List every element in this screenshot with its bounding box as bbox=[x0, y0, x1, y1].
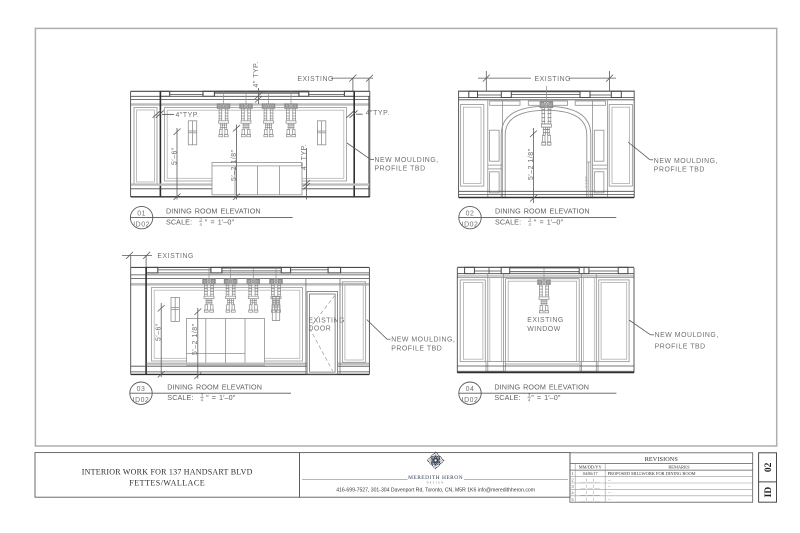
svg-text:DINING ROOM ELEVATION: DINING ROOM ELEVATION bbox=[494, 382, 589, 391]
svg-text:2′-1 3/4″: 2′-1 3/4″ bbox=[585, 175, 589, 188]
svg-text:″ = 1′–0″: ″ = 1′–0″ bbox=[206, 393, 236, 402]
svg-text:PROFILE TBD: PROFILE TBD bbox=[655, 343, 706, 350]
svg-text:__/__/__: __/__/__ bbox=[579, 484, 600, 489]
svg-text:__/__/__: __/__/__ bbox=[579, 478, 600, 483]
svg-text:416-699-7527, 301-304 Davenpor: 416-699-7527, 301-304 Davenport Rd, Toro… bbox=[336, 487, 535, 493]
svg-text:ID02: ID02 bbox=[462, 397, 479, 404]
svg-text:ID: ID bbox=[764, 487, 774, 498]
svg-text:NEW MOULDING,: NEW MOULDING, bbox=[654, 158, 718, 165]
svg-text:EXISTING: EXISTING bbox=[308, 318, 345, 325]
svg-text:EXISTING: EXISTING bbox=[527, 317, 564, 324]
svg-text:04: 04 bbox=[466, 386, 475, 393]
svg-text:ID02: ID02 bbox=[133, 397, 150, 404]
svg-text:″ = 1′–0″: ″ = 1′–0″ bbox=[531, 393, 561, 402]
svg-text:MEREDITH HERON: MEREDITH HERON bbox=[408, 475, 463, 481]
svg-text:DINING ROOM ELEVATION: DINING ROOM ELEVATION bbox=[166, 207, 261, 216]
svg-text:REMARKS: REMARKS bbox=[668, 465, 690, 470]
svg-text:″ = 1′–0″: ″ = 1′–0″ bbox=[534, 217, 564, 226]
svg-text:4″ TYP.: 4″ TYP. bbox=[301, 144, 308, 170]
svg-text:SCALE:: SCALE: bbox=[166, 217, 192, 226]
svg-text:NEW MOULDING,: NEW MOULDING, bbox=[655, 332, 719, 339]
svg-text:DOOR: DOOR bbox=[308, 325, 331, 332]
svg-text:EXISTING: EXISTING bbox=[535, 76, 572, 83]
svg-text:03: 03 bbox=[137, 386, 146, 393]
svg-text:02: 02 bbox=[764, 462, 774, 472]
svg-text:1: 1 bbox=[572, 472, 574, 476]
svg-text:5′–6″: 5′–6″ bbox=[171, 147, 178, 165]
svg-text:INTERIOR WORK FOR 137 HANDSART: INTERIOR WORK FOR 137 HANDSART BLVD bbox=[82, 467, 253, 476]
svg-text:5′–6″: 5′–6″ bbox=[156, 323, 163, 341]
svg-text:04/06/17: 04/06/17 bbox=[583, 471, 598, 476]
svg-text:5′–2 1/8″: 5′–2 1/8″ bbox=[528, 148, 535, 180]
svg-text:5′–2 1/8″: 5′–2 1/8″ bbox=[192, 323, 199, 355]
svg-text:DINING ROOM ELEVATION: DINING ROOM ELEVATION bbox=[495, 207, 590, 216]
svg-text:__/__/__: __/__/__ bbox=[579, 491, 600, 496]
svg-text:NEW MOULDING,: NEW MOULDING, bbox=[391, 337, 455, 344]
svg-text:4″ TYP.: 4″ TYP. bbox=[253, 61, 260, 87]
svg-text:DINING ROOM ELEVATION: DINING ROOM ELEVATION bbox=[167, 382, 262, 391]
svg-text:WINDOW: WINDOW bbox=[527, 326, 561, 333]
svg-text:NEW MOULDING,: NEW MOULDING, bbox=[375, 157, 439, 164]
svg-text:ID02: ID02 bbox=[462, 221, 479, 228]
svg-text:__/__/__: __/__/__ bbox=[579, 497, 600, 502]
svg-text:FETTES/WALLACE: FETTES/WALLACE bbox=[129, 478, 205, 487]
svg-text:ID02: ID02 bbox=[133, 221, 150, 228]
svg-text:SCALE:: SCALE: bbox=[494, 393, 520, 402]
svg-text:MM/DD/YY: MM/DD/YY bbox=[579, 465, 603, 470]
svg-text:SCALE:: SCALE: bbox=[495, 217, 521, 226]
svg-text:5′–2 1/8″: 5′–2 1/8″ bbox=[231, 149, 238, 181]
svg-text:PROFILE TBD: PROFILE TBD bbox=[654, 167, 705, 174]
svg-text:EXISTING: EXISTING bbox=[157, 253, 194, 260]
svg-text:EXISTING: EXISTING bbox=[297, 76, 334, 83]
svg-text:PROPOSED MILLWORK FOR DINING R: PROPOSED MILLWORK FOR DINING ROOM bbox=[608, 471, 696, 476]
svg-text:4″TYP.: 4″TYP. bbox=[366, 110, 390, 117]
svg-text:PROFILE TBD: PROFILE TBD bbox=[391, 345, 442, 352]
svg-text:DESIGN: DESIGN bbox=[427, 481, 445, 484]
svg-text:SCALE:: SCALE: bbox=[167, 393, 193, 402]
svg-text:PROFILE TBD: PROFILE TBD bbox=[375, 166, 426, 173]
svg-text:02: 02 bbox=[466, 210, 475, 217]
svg-text:4″TYP.: 4″TYP. bbox=[176, 112, 200, 119]
svg-text:REVISIONS: REVISIONS bbox=[645, 456, 679, 463]
svg-text:01: 01 bbox=[137, 210, 146, 217]
svg-text:″ = 1′–0″: ″ = 1′–0″ bbox=[205, 217, 235, 226]
